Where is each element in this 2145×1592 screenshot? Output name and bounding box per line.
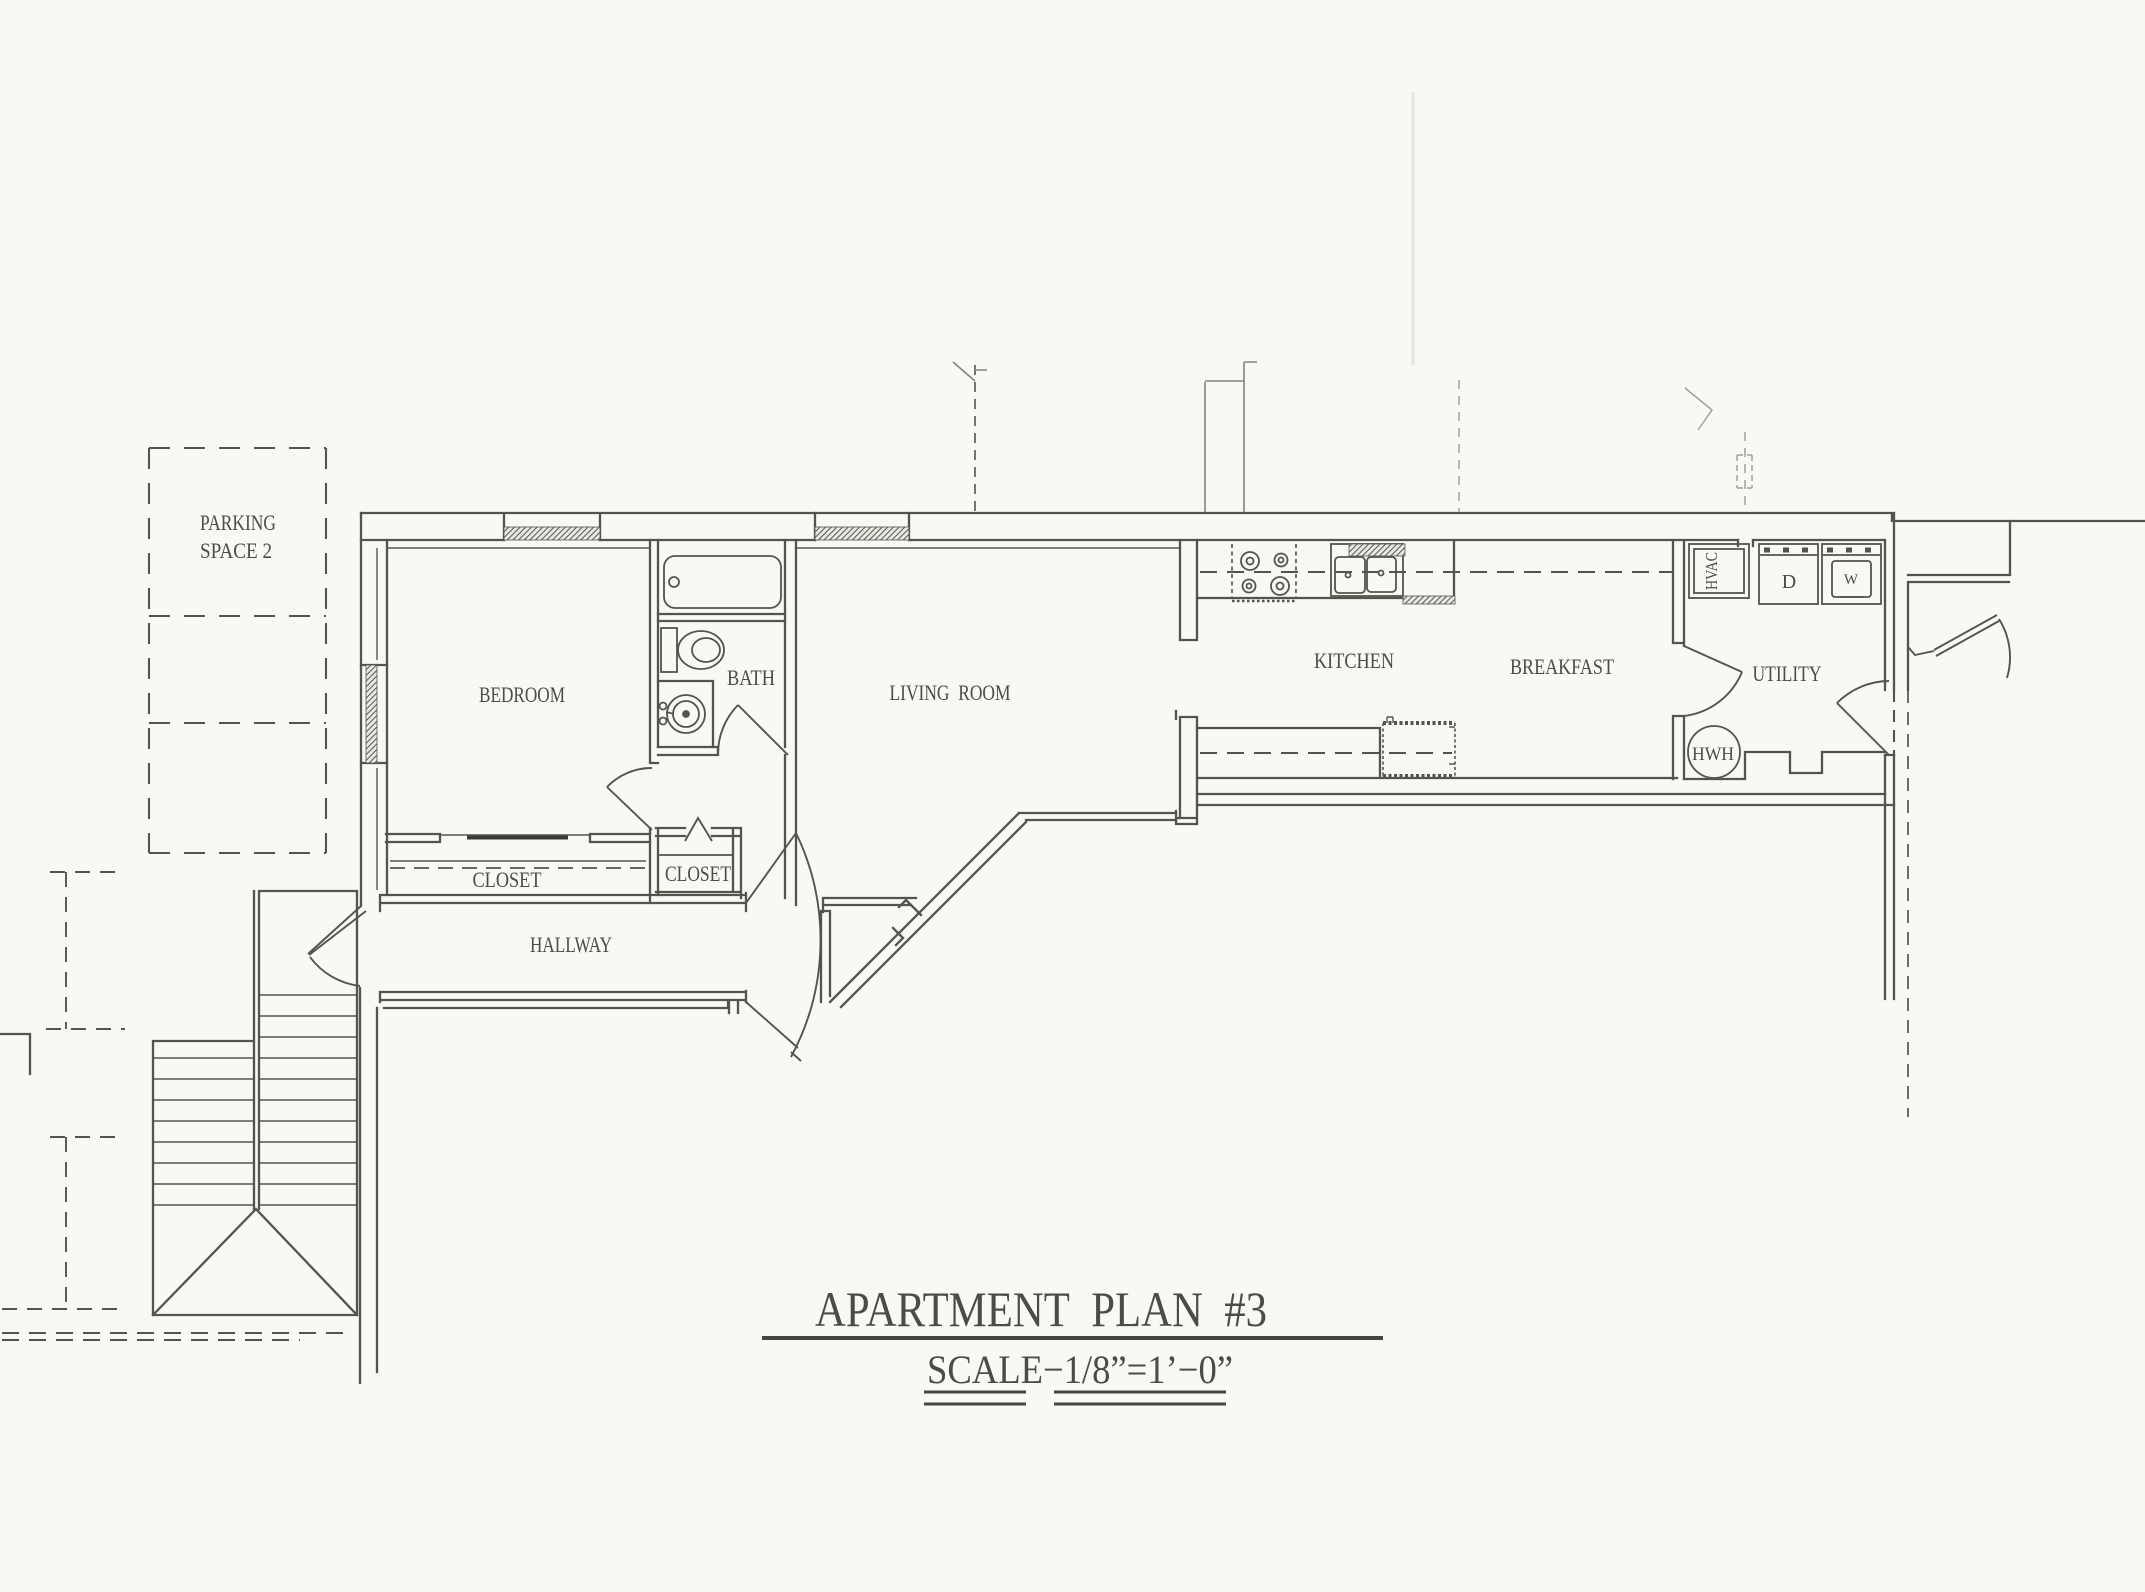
svg-text:BATH: BATH (727, 665, 775, 690)
svg-text:D: D (1782, 571, 1796, 593)
svg-text:CLOSET: CLOSET (665, 861, 731, 886)
svg-text:APARTMENT PLAN #3: APARTMENT PLAN #3 (815, 1281, 1267, 1337)
svg-text:BEDROOM: BEDROOM (479, 682, 565, 707)
svg-text:SPACE 2: SPACE 2 (200, 538, 272, 563)
svg-text:HVAC: HVAC (1702, 552, 1721, 590)
svg-text:KITCHEN: KITCHEN (1314, 648, 1394, 673)
svg-text:UTILITY: UTILITY (1753, 661, 1822, 686)
svg-text:LIVING ROOM: LIVING ROOM (890, 680, 1011, 705)
svg-text:HWH: HWH (1692, 744, 1734, 765)
svg-text:SCALE−1/8”=1’−0”: SCALE−1/8”=1’−0” (927, 1347, 1233, 1392)
svg-text:CLOSET: CLOSET (473, 867, 542, 892)
svg-text:BREAKFAST: BREAKFAST (1510, 654, 1614, 679)
svg-text:W: W (1844, 572, 1859, 588)
svg-text:HALLWAY: HALLWAY (530, 932, 612, 957)
svg-text:PARKING: PARKING (200, 510, 276, 535)
